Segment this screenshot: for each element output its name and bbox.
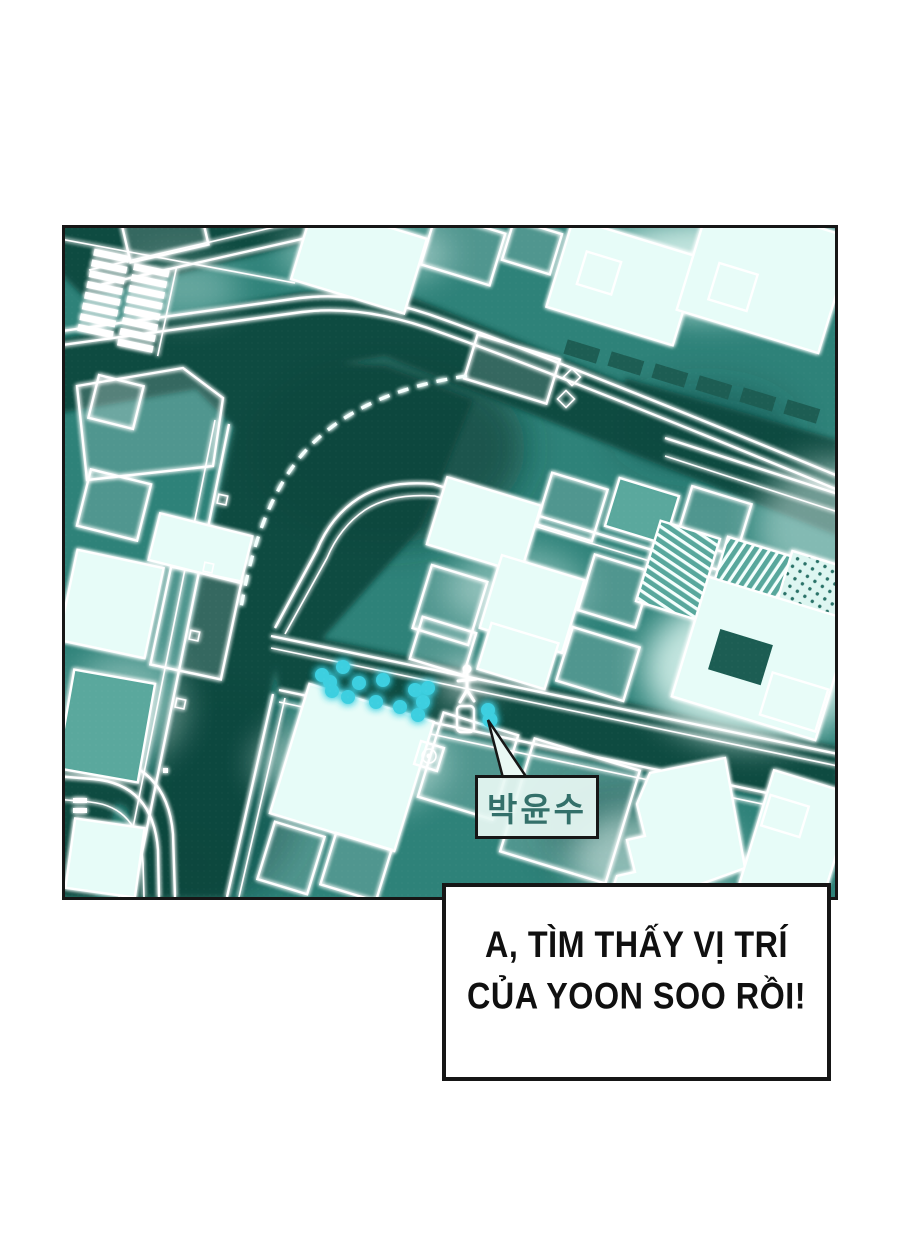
speech-line-1: A, TÌM THẤY VỊ TRÍ xyxy=(450,919,823,971)
city-map xyxy=(65,228,835,897)
map-panel: 박윤수 xyxy=(62,225,838,900)
halftone-texture xyxy=(65,228,835,897)
comic-page: 박윤수 A, TÌM THẤY VỊ TRÍ CỦA YOON SOO RỒI! xyxy=(0,0,900,1260)
map-name-label: 박윤수 xyxy=(487,783,587,831)
speech-text: A, TÌM THẤY VỊ TRÍ CỦA YOON SOO RỒI! xyxy=(450,919,823,1022)
speech-line-2: CỦA YOON SOO RỒI! xyxy=(450,971,823,1023)
speech-box: A, TÌM THẤY VỊ TRÍ CỦA YOON SOO RỒI! xyxy=(442,883,831,1081)
map-name-label-box: 박윤수 xyxy=(475,775,599,839)
